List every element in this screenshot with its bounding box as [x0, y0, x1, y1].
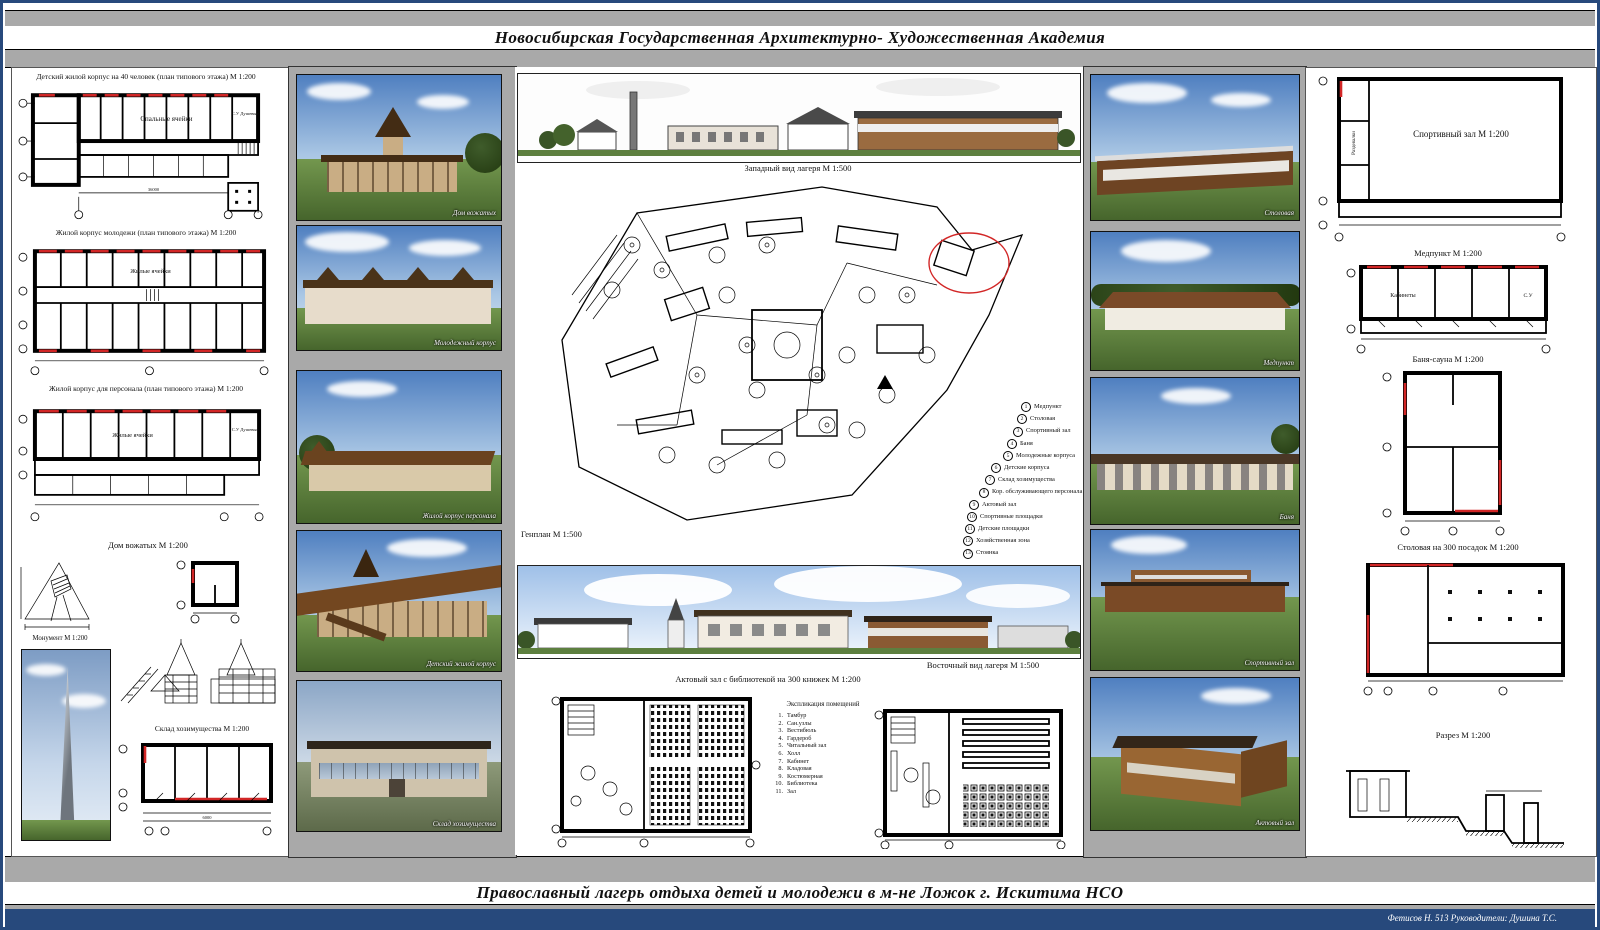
cloud — [305, 232, 389, 252]
monument-caption: Монумент М 1:200 — [13, 635, 107, 642]
legend-item: Столовая — [1017, 413, 1093, 425]
explication-item: Гардероб — [773, 735, 873, 743]
legend-item: Молодежные корпуса — [1003, 450, 1093, 462]
legend-item: Кор. обслуживающего персонала — [979, 486, 1093, 498]
cloud — [1111, 536, 1187, 554]
legend-item: Хозяйственная зона — [963, 535, 1093, 547]
gable — [452, 267, 474, 280]
razrez-caption: Разрез М 1:200 — [1403, 731, 1523, 740]
dining-plan-drawing — [871, 703, 1073, 849]
dom-caption: Дом вожатых М 1:200 — [73, 541, 223, 550]
explication-label: Читальный зал — [787, 742, 826, 750]
tree — [1271, 424, 1300, 454]
explication-list: Экспликация помещений Тамбур Сан.узлы Ве… — [773, 701, 873, 796]
legend-label: Склад хозимущества — [998, 474, 1055, 486]
cloud — [327, 381, 397, 397]
towers-elevation-sketch — [115, 639, 283, 709]
monument-sketch — [17, 555, 97, 633]
render-caption: Актовый зал — [1256, 819, 1294, 827]
legend-label: Детские площадки — [978, 523, 1029, 535]
render-caption: Молодежный корпус — [434, 339, 496, 347]
legend-label: Стоянка — [976, 547, 998, 559]
explication-item: Костюмерная — [773, 773, 873, 781]
window-band — [319, 763, 479, 779]
plan3-room1-label: Жилые ячейки — [112, 432, 153, 439]
building-wall — [309, 465, 491, 491]
plan3-caption: Жилой корпус для персонала (план типовог… — [15, 385, 277, 393]
render-caption: Баня — [1280, 513, 1294, 521]
explication-item: Библиотека — [773, 780, 873, 788]
cloud — [26, 664, 66, 676]
explication-item: Вестибюль — [773, 727, 873, 735]
render-youth-housing: Молодежный корпус — [296, 225, 502, 351]
legend-item: Спортивные площадки — [967, 511, 1093, 523]
banya-plan-drawing — [1375, 365, 1515, 537]
render-stolovaya: Столовая — [1090, 74, 1300, 221]
cloud — [1121, 240, 1211, 262]
render-sklad: Склад хозимущества — [296, 680, 502, 832]
academy-title-band: Новосибирская Государственная Архитектур… — [5, 26, 1595, 49]
plan1-room2-label: С.У Душевые — [232, 111, 259, 116]
explication-item: Тамбур — [773, 712, 873, 720]
render-dom-vozhatykh: Дом вожатых — [296, 74, 502, 221]
explication-item: Кабинет — [773, 758, 873, 766]
sportzal-plan-drawing: Раздевалки Спортивный зал М 1:200 — [1311, 73, 1569, 245]
monument-photo — [21, 649, 111, 841]
door — [389, 779, 405, 797]
render-caption: Медпункт — [1263, 359, 1294, 367]
sklad-dim: 6000 — [203, 815, 213, 820]
explication-label: Сан.узлы — [787, 720, 812, 728]
gray-bar-bottom-1 — [5, 856, 1595, 884]
explication-item: Читальный зал — [773, 742, 873, 750]
render-caption: Жилой корпус персонала — [423, 512, 496, 520]
plan2-room-label: Жилые ячейки — [130, 268, 171, 275]
plan2-youth-housing: Жилые ячейки — [15, 239, 279, 377]
explication-item: Сан.узлы — [773, 720, 873, 728]
render-caption: Спортивный зал — [1245, 659, 1294, 667]
legend-item: Актовый зал — [969, 499, 1093, 511]
explication-label: Библиотека — [787, 780, 817, 788]
explication-item: Холл — [773, 750, 873, 758]
legend-label: Спортивные площадки — [980, 511, 1043, 523]
plan3-staff-housing: Жилые ячейки С.У Душевые — [15, 395, 279, 527]
gable — [407, 267, 429, 280]
genplan-caption: Генплан М 1:500 — [521, 530, 631, 539]
tower-spire — [353, 549, 379, 577]
render-caption: Столовая — [1264, 209, 1294, 217]
building-wall — [327, 162, 457, 192]
cloud — [387, 539, 467, 557]
west-elevation-drawing — [517, 73, 1081, 163]
cloud — [1107, 83, 1187, 103]
legend-label: Спортивный зал — [1026, 425, 1071, 437]
explication-label: Вестибюль — [787, 727, 816, 735]
tower-spire — [375, 107, 411, 137]
explication-item: Зал — [773, 788, 873, 796]
legend-label: Актовый зал — [982, 499, 1016, 511]
building-roof — [321, 155, 463, 162]
sport-rooms-label: Раздевалки — [1352, 131, 1357, 155]
legend-item: Стоянка — [963, 547, 1093, 559]
east-elevation-drawing — [517, 565, 1081, 659]
building-roof — [1101, 582, 1289, 586]
gable — [317, 267, 339, 280]
explication-label: Холл — [787, 750, 800, 758]
dom-plan-small — [173, 555, 249, 625]
academy-title: Новосибирская Государственная Архитектур… — [495, 28, 1105, 48]
explication-label: Кабинет — [787, 758, 809, 766]
west-elevation-caption: Западный вид лагеря М 1:500 — [517, 164, 1079, 173]
hall-plan-drawing — [548, 689, 764, 849]
cloud — [1161, 388, 1231, 404]
explication-item: Кладовая — [773, 765, 873, 773]
legend-label: Столовая — [1030, 413, 1055, 425]
render-caption: Детский жилой корпус — [427, 660, 496, 668]
legend-item: Спортивный зал — [1013, 425, 1093, 437]
gable — [301, 441, 337, 465]
stolovaya-plan-drawing — [1343, 555, 1575, 697]
explication-label: Тамбур — [787, 712, 806, 720]
legend-label: Кор. обслуживающего персонала — [992, 486, 1082, 498]
gray-bar-top-1 — [5, 10, 1595, 27]
explication-label: Зал — [787, 788, 796, 796]
legend-item: Медпункт — [1021, 401, 1093, 413]
credits-bar: Фетисов Н. 513 Руководители: Душина Т.С. — [5, 909, 1595, 927]
building-wall — [1105, 586, 1285, 612]
render-caption: Дом вожатых — [453, 209, 496, 217]
render-children-housing: Детский жилой корпус — [296, 530, 502, 672]
project-title-band: Православный лагерь отдыха детей и молод… — [5, 882, 1595, 904]
genplan-legend: Медпункт Столовая Спортивный зал Баня Мо… — [963, 401, 1093, 560]
legend-item: Детские площадки — [965, 523, 1093, 535]
legend-item: Детские корпуса — [991, 462, 1093, 474]
sport-hall-label: Спортивный зал М 1:200 — [1413, 129, 1509, 139]
banya-caption: Баня-сауна М 1:200 — [1348, 355, 1548, 364]
legend-item: Баня — [1007, 438, 1093, 450]
legend-item: Склад хозимущества — [985, 474, 1093, 486]
render-staff-housing: Жилой корпус персонала — [296, 370, 502, 524]
render-medpunkt: Медпункт — [1090, 231, 1300, 371]
presentation-board: Новосибирская Государственная Архитектур… — [0, 0, 1600, 930]
medpunkt-room-su: С.У — [1523, 293, 1532, 299]
cloud — [307, 83, 371, 100]
razrez-section-drawing — [1338, 743, 1570, 851]
render-caption: Склад хозимущества — [433, 820, 496, 828]
cloud — [1211, 93, 1271, 107]
stolovaya-caption: Столовая на 300 посадок М 1:200 — [1343, 543, 1573, 552]
plan2-caption: Жилой корпус молодежи (план типового эта… — [15, 229, 277, 237]
medpunkt-plan-drawing: Кабинеты С.У — [1343, 259, 1559, 355]
building-roof — [303, 280, 493, 288]
explication-label: Костюмерная — [787, 773, 823, 781]
medpunkt-room-kab: Кабинеты — [1390, 292, 1415, 299]
medpunkt-caption: Медпункт М 1:200 — [1333, 249, 1563, 258]
plan1-dim-total: 36000 — [148, 187, 160, 192]
photo-grass — [22, 820, 110, 840]
render-sportzal: Спортивный зал — [1090, 529, 1300, 671]
gray-bar-top-2 — [5, 49, 1595, 68]
cloud — [417, 95, 469, 109]
render-banya: Баня — [1090, 377, 1300, 525]
legend-label: Медпункт — [1034, 401, 1061, 413]
building-roof — [1112, 736, 1257, 748]
hall-plan-caption: Актовый зал с библиотекой на 300 книжек … — [603, 675, 933, 684]
tree — [465, 133, 502, 173]
explication-label: Гардероб — [787, 735, 811, 743]
plan1-caption: Детский жилой корпус на 40 человек (план… — [15, 73, 277, 81]
building-wall — [1105, 308, 1285, 330]
plan1-children-housing: Спальные ячейки С.У Душевые 36000 — [15, 83, 279, 227]
building-wall — [305, 288, 491, 324]
legend-label: Хозяйственная зона — [976, 535, 1030, 547]
building-wall — [1097, 464, 1293, 490]
building-roof — [1099, 292, 1291, 308]
sklad-plan: 6000 — [115, 735, 283, 839]
cloud — [409, 240, 481, 256]
clerestory-band — [1135, 575, 1247, 579]
credits-text: Фетисов Н. 513 Руководители: Душина Т.С. — [1388, 913, 1557, 923]
legend-label: Детские корпуса — [1004, 462, 1049, 474]
plan3-room2-label: С.У Душевые — [232, 427, 259, 432]
project-title: Православный лагерь отдыха детей и молод… — [477, 883, 1124, 903]
legend-label: Молодежные корпуса — [1016, 450, 1075, 462]
tower-body — [383, 137, 403, 155]
legend-label: Баня — [1020, 438, 1033, 450]
building-roof — [307, 741, 491, 749]
sklad-caption: Склад хозимущества М 1:200 — [123, 725, 281, 733]
explication-title: Экспликация помещений — [773, 701, 873, 708]
cloud — [1201, 688, 1271, 704]
east-elevation-caption: Восточный вид лагеря М 1:500 — [883, 661, 1083, 670]
plan1-room1-label: Спальные ячейки — [140, 115, 192, 123]
gable — [362, 267, 384, 280]
building-roof — [1091, 454, 1299, 464]
explication-label: Кладовая — [787, 765, 812, 773]
render-aktovy-zal: Актовый зал — [1090, 677, 1300, 831]
